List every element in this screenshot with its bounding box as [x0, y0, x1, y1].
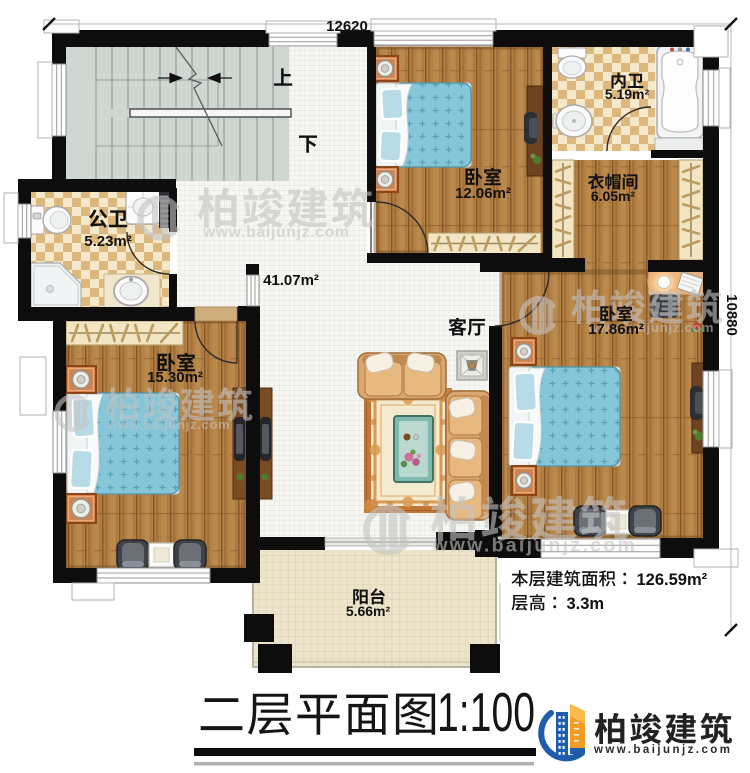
svg-text:12620: 12620	[326, 18, 368, 35]
svg-text:www.baijunjz.com: www.baijunjz.com	[593, 744, 732, 756]
svg-text:15.30m²: 15.30m²	[147, 369, 203, 386]
svg-text:1:100: 1:100	[437, 681, 535, 743]
svg-text:41.07m²: 41.07m²	[263, 272, 319, 289]
svg-text:www.baijunjz.com: www.baijunjz.com	[202, 224, 350, 241]
svg-text:www.baijunjz.com: www.baijunjz.com	[431, 534, 637, 556]
svg-text:5.23m²: 5.23m²	[84, 233, 132, 250]
svg-text:6.05m²: 6.05m²	[591, 188, 636, 204]
svg-text:126.59m²: 126.59m²	[637, 571, 708, 589]
svg-text:17.86m²: 17.86m²	[588, 321, 644, 338]
svg-text:5.66m²: 5.66m²	[346, 603, 391, 619]
svg-text:www.baijunjz.com: www.baijunjz.com	[106, 417, 230, 432]
svg-text:12.06m²: 12.06m²	[455, 185, 511, 202]
svg-text:3.3m: 3.3m	[567, 595, 605, 613]
svg-text:10880: 10880	[723, 294, 740, 336]
svg-text:5.19m²: 5.19m²	[605, 86, 650, 102]
